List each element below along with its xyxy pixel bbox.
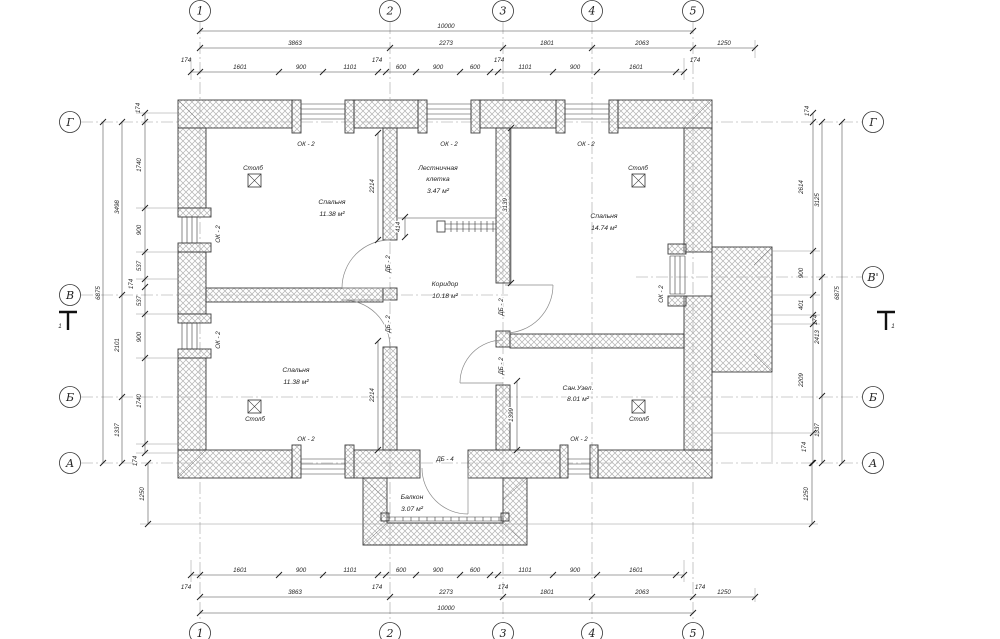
dim: 537 [136, 260, 143, 271]
axis-top-3: 3 [500, 5, 507, 18]
dim: 1601 [629, 64, 643, 71]
dim: 3139 [502, 198, 509, 212]
dim: 900 [136, 224, 143, 235]
dim: 2273 [438, 40, 453, 47]
dim: 3863 [288, 589, 302, 596]
window-label: ОК - 2 [215, 331, 222, 349]
window-label: ОК - 2 [215, 225, 222, 243]
dim: 1601 [629, 567, 643, 574]
dim: 174 [801, 441, 808, 452]
room-bedroom-tl-name: Спальня [318, 199, 346, 206]
dim: 1250 [717, 40, 731, 47]
axis-top-4: 4 [588, 5, 596, 18]
dim: 900 [296, 567, 307, 574]
dim: 2413 [814, 330, 821, 345]
dim: 3863 [288, 40, 302, 47]
dim: 2209 [798, 373, 805, 388]
axis-bottom-3: 3 [500, 627, 507, 639]
dim: 1801 [540, 40, 554, 47]
stairs-icon [398, 218, 496, 232]
door-label: ДБ - 2 [498, 357, 505, 376]
column-label: Столб [629, 416, 649, 423]
window-label: ОК - 2 [570, 436, 588, 443]
floor-plan-drawing: 1 2 3 4 5 1 2 3 4 5 Г В Б А Г В' Б А [0, 0, 1000, 639]
axis-right-a: А [868, 457, 877, 470]
column-symbol [248, 400, 261, 413]
dim: 600 [396, 567, 407, 574]
window-right [668, 244, 686, 306]
dim: 2214 [369, 179, 376, 194]
dim: 174 [494, 57, 505, 64]
axis-left-a: А [65, 457, 74, 470]
window-label: ОК - 2 [297, 436, 315, 443]
dim: 174 [812, 314, 819, 325]
room-bathroom-area: 8.01 м² [567, 396, 590, 403]
dim: 2273 [438, 589, 453, 596]
dim-right-total: 6875 [834, 286, 841, 300]
dim: 2614 [798, 180, 805, 195]
column-symbol [632, 400, 645, 413]
balcony-structure [363, 478, 527, 545]
room-bathroom-name: Сан.Узел. [562, 385, 593, 392]
dim: 174 [132, 455, 139, 466]
section-mark-right: 1 [891, 323, 894, 330]
dim: 1250 [717, 589, 731, 596]
dim: 1250 [139, 487, 146, 501]
dim: 2101 [114, 338, 121, 353]
door-label: ДБ - 2 [385, 315, 392, 334]
door-bedroom-tr [505, 285, 553, 333]
axis-left-v: В [65, 289, 74, 302]
dim: 1740 [136, 394, 143, 408]
masonry-projection [712, 247, 772, 372]
axis-bottom-1: 1 [197, 627, 204, 639]
room-bedroom-tr-name: Спальня [590, 213, 618, 220]
dim: 174 [804, 105, 811, 116]
dim: 2063 [634, 589, 649, 596]
dim: 414 [395, 221, 402, 232]
axis-right-v1: В' [866, 271, 878, 284]
column-symbol [248, 174, 261, 187]
axis-top-1: 1 [197, 5, 204, 18]
plan-canvas: 1 2 3 4 5 1 2 3 4 5 Г В Б А Г В' Б А [0, 0, 1000, 639]
dim: 1101 [343, 64, 356, 71]
dim-top-total: 10000 [437, 23, 455, 30]
dim: 2214 [369, 388, 376, 403]
axis-top-5: 5 [690, 5, 697, 18]
room-bedroom-tr-area: 14.74 м² [591, 225, 618, 232]
balcony-door-label: ДБ - 4 [435, 456, 454, 463]
axis-left-g: Г [65, 116, 74, 129]
walls [178, 100, 772, 478]
room-balcony-name: Балкон [401, 494, 424, 501]
dim: 1740 [136, 158, 143, 172]
axis-left-b: Б [65, 391, 74, 404]
dim: 1337 [114, 423, 121, 437]
room-stairwell-name2: клетка [426, 176, 450, 183]
axis-right-g: Г [868, 116, 877, 129]
dim: 900 [296, 64, 307, 71]
window-left-upper [178, 208, 211, 252]
axis-right-b: Б [868, 391, 877, 404]
dim: 174 [498, 584, 509, 591]
room-balcony-area: 3.07 м² [401, 506, 424, 513]
dim-bottom-total: 10000 [437, 605, 455, 612]
room-bedroom-tl-area: 11.38 м² [319, 211, 345, 218]
column-label: Столб [628, 165, 648, 172]
dim: 174 [690, 57, 701, 64]
room-bedroom-bl-area: 11.38 м² [283, 379, 309, 386]
window-top-right [556, 100, 618, 133]
door-balcony [422, 468, 468, 514]
window-top-left [292, 100, 354, 133]
dim: 174 [695, 584, 706, 591]
window-label: ОК - 2 [577, 141, 595, 148]
dim: 3498 [114, 200, 121, 214]
window-label: ОК - 2 [658, 285, 665, 303]
door-label: ДБ - 2 [498, 298, 505, 317]
dim: 537 [136, 295, 143, 306]
axis-bottom-2: 2 [386, 627, 394, 639]
dim: 174 [135, 102, 142, 113]
dim: 174 [181, 584, 192, 591]
dim-left-total: 6875 [95, 286, 102, 300]
window-label: ОК - 2 [297, 141, 315, 148]
door-label: ДБ - 2 [385, 255, 392, 274]
dim: 600 [396, 64, 407, 71]
room-stairwell-area: 3.47 м² [427, 188, 450, 195]
section-mark-left: 1 [58, 323, 61, 330]
dim: 1801 [540, 589, 554, 596]
axis-bottom-4: 4 [588, 627, 596, 639]
room-corridor-area: 10.18 м² [432, 293, 459, 300]
dim: 1101 [343, 567, 356, 574]
dim: 1101 [518, 567, 531, 574]
dim: 900 [798, 267, 805, 278]
axis-bottom-5: 5 [690, 627, 697, 639]
column-label: Столб [243, 165, 263, 172]
door-bedroom-bl [342, 300, 390, 347]
window-bottom-left [292, 445, 354, 478]
dim: 401 [798, 300, 805, 310]
dim: 600 [470, 64, 481, 71]
window-left-lower [178, 314, 211, 358]
dim: 1250 [803, 487, 810, 501]
dim: 1337 [814, 423, 821, 437]
dim: 1601 [233, 64, 247, 71]
dim: 1399 [508, 408, 515, 422]
dim: 1101 [518, 64, 531, 71]
door-bedroom-tl [342, 240, 390, 288]
room-bedroom-bl-name: Спальня [282, 367, 310, 374]
dim: 900 [136, 331, 143, 342]
dim: 174 [372, 57, 383, 64]
window-bottom-bath [560, 445, 598, 478]
dim: 174 [372, 584, 383, 591]
dim: 2063 [634, 40, 649, 47]
dim: 900 [570, 64, 581, 71]
room-corridor-name: Коридор [432, 280, 459, 288]
dim: 1601 [233, 567, 247, 574]
dim: 900 [433, 64, 444, 71]
axis-top-2: 2 [386, 5, 394, 18]
column-symbol [632, 174, 645, 187]
window-label: ОК - 2 [440, 141, 458, 148]
dim: 900 [433, 567, 444, 574]
dim: 600 [470, 567, 481, 574]
dim: 174 [128, 278, 135, 289]
dim: 174 [181, 57, 192, 64]
column-label: Столб [245, 416, 265, 423]
room-stairwell-name1: Лестничная [417, 165, 458, 172]
window-top-center [418, 100, 480, 133]
dim: 900 [570, 567, 581, 574]
dim: 3125 [814, 193, 821, 207]
